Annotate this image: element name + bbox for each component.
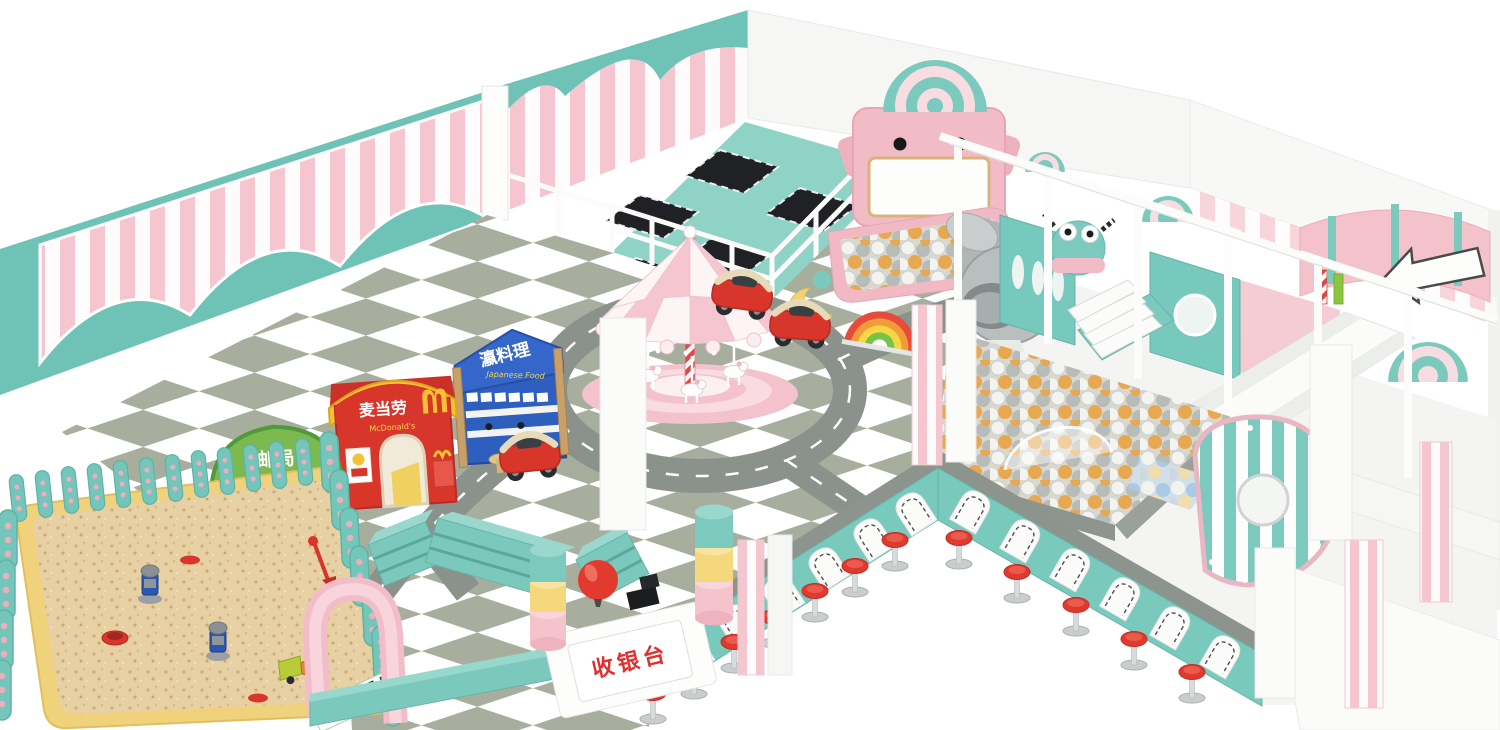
white-pillar	[946, 300, 976, 462]
bar-stool	[1063, 598, 1089, 637]
white-pillar	[600, 318, 646, 530]
cashier-column-left	[530, 543, 566, 651]
bar-stool	[1179, 665, 1205, 704]
playground-render: 瀛料理 Japanese Food 麦当劳 McDonald's 邮局 POST…	[0, 0, 1500, 730]
red-disc	[180, 556, 200, 565]
white-pillar	[1255, 548, 1295, 698]
striped-column	[738, 540, 764, 675]
red-disc	[248, 694, 268, 703]
sand-digger	[138, 565, 162, 604]
striped-column	[1420, 442, 1452, 602]
cashier-column-right	[695, 505, 733, 626]
mcdonalds-sign-cn: 麦当劳	[358, 398, 407, 420]
white-pillar	[1310, 345, 1352, 540]
monster-eye	[894, 138, 907, 151]
corner-pillar	[482, 86, 508, 220]
playground-scene: 瀛料理 Japanese Food 麦当劳 McDonald's 邮局 POST…	[0, 0, 1500, 730]
striped-column	[1345, 540, 1383, 708]
white-slab	[768, 535, 792, 675]
bar-stool	[1121, 632, 1147, 671]
bar-stool	[946, 531, 972, 570]
octopus-character	[1044, 214, 1114, 275]
bar-stool	[1004, 565, 1030, 604]
striped-column	[912, 305, 942, 465]
sand-digger	[206, 622, 230, 661]
